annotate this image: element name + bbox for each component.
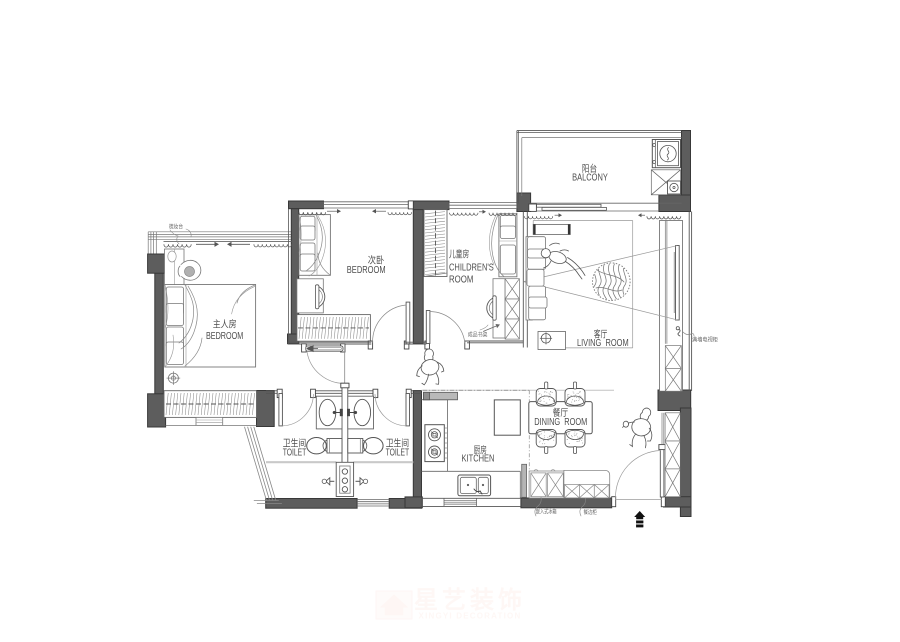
svg-text:成品书桌: 成品书桌 xyxy=(468,331,488,339)
svg-text:DINING ROOM: DINING ROOM xyxy=(534,417,587,428)
svg-text:餐边柜: 餐边柜 xyxy=(584,508,598,516)
svg-text:BEDROOM: BEDROOM xyxy=(347,265,386,276)
svg-text:梳妆台: 梳妆台 xyxy=(169,222,183,230)
svg-text:CHILDREN'S: CHILDREN'S xyxy=(449,262,494,273)
svg-text:LIVING ROOM: LIVING ROOM xyxy=(577,338,629,349)
svg-text:儿童房: 儿童房 xyxy=(449,249,469,261)
svg-text:BALCONY: BALCONY xyxy=(572,173,608,184)
svg-text:KITCHEN: KITCHEN xyxy=(462,454,495,465)
svg-text:嵌入式冰箱: 嵌入式冰箱 xyxy=(536,508,557,516)
svg-text:BEDROOM: BEDROOM xyxy=(206,331,243,342)
svg-text:星艺装饰: 星艺装饰 xyxy=(414,587,526,614)
svg-text:ROOM: ROOM xyxy=(449,274,473,285)
svg-text:XINGYI DECORATION: XINGYI DECORATION xyxy=(419,612,522,621)
svg-text:满墙电视柜: 满墙电视柜 xyxy=(692,336,718,344)
svg-text:TOILET: TOILET xyxy=(386,447,410,458)
svg-text:主人房: 主人房 xyxy=(213,319,237,331)
svg-text:TOILET: TOILET xyxy=(283,447,307,458)
